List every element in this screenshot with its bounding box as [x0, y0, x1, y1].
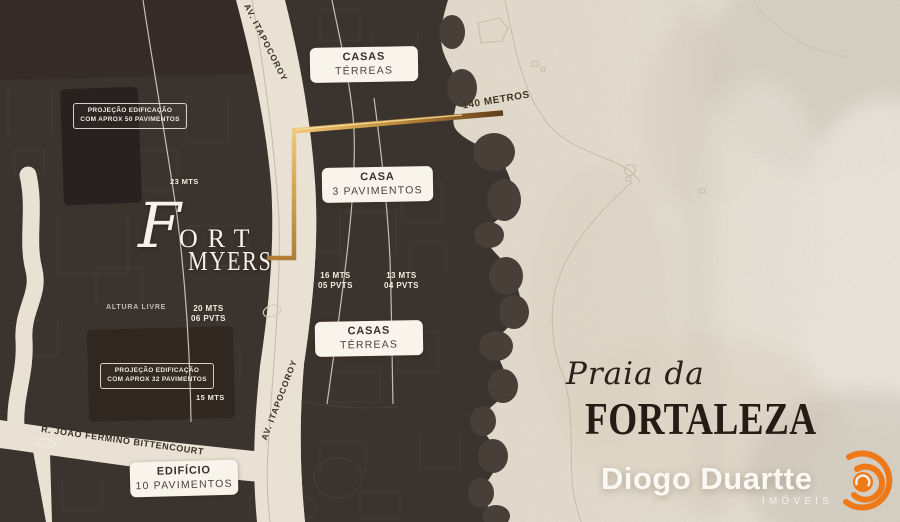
measurement-13mts-04pvts: 13 MTS 04 PVTS — [384, 271, 419, 291]
label-casas-terreas-north: CASAS TÉRREAS — [310, 46, 419, 83]
annotation-line: PROJEÇÃO EDIFICAÇÃO — [76, 107, 184, 116]
logo-initial: F — [138, 202, 181, 250]
measurement-16mts-05pvts: 16 MTS 05 PVTS — [318, 271, 353, 291]
label-casa-3-pavimentos: CASA 3 PAVIMENTOS — [322, 166, 434, 203]
brand-name: Diogo Duartte — [601, 461, 834, 497]
brand-logo-icon — [834, 449, 898, 517]
brand-tagline: IMÓVEIS — [601, 496, 833, 507]
measurement-altura-livre: ALTURA LIVRE — [106, 304, 166, 313]
annotation-projection-32: PROJEÇÃO EDIFICAÇÃO COM APROX 32 PAVIMEN… — [100, 363, 214, 389]
label-casas-terreas-south: CASAS TÉRREAS — [315, 320, 424, 357]
real-estate-map: PROJEÇÃO EDIFICAÇÃO COM APROX 50 PAVIMEN… — [0, 0, 900, 522]
measurement-20mts-06pvts: 20 MTS 06 PVTS — [191, 304, 226, 324]
beach-name-script: Praia da — [566, 356, 705, 392]
project-logo-fort-myers: F ORT MYERS — [138, 202, 278, 277]
annotation-line: PROJEÇÃO EDIFICAÇÃO — [103, 367, 211, 376]
city-block-west-top-band — [0, 0, 256, 80]
measurement-23mts: 23 MTS — [170, 177, 199, 186]
annotation-line: COM APROX 32 PAVIMENTOS — [103, 376, 211, 385]
annotation-projection-50: PROJEÇÃO EDIFICAÇÃO COM APROX 50 PAVIMEN… — [73, 103, 187, 129]
logo-word-myers: MYERS — [188, 246, 262, 277]
label-edificio-10-pavimentos: EDIFÍCIO 10 PAVIMENTOS — [130, 460, 239, 498]
measurement-15mts: 15 MTS — [196, 393, 225, 402]
annotation-line: COM APROX 50 PAVIMENTOS — [76, 116, 184, 125]
beach-name-title: FORTALEZA — [585, 392, 817, 445]
